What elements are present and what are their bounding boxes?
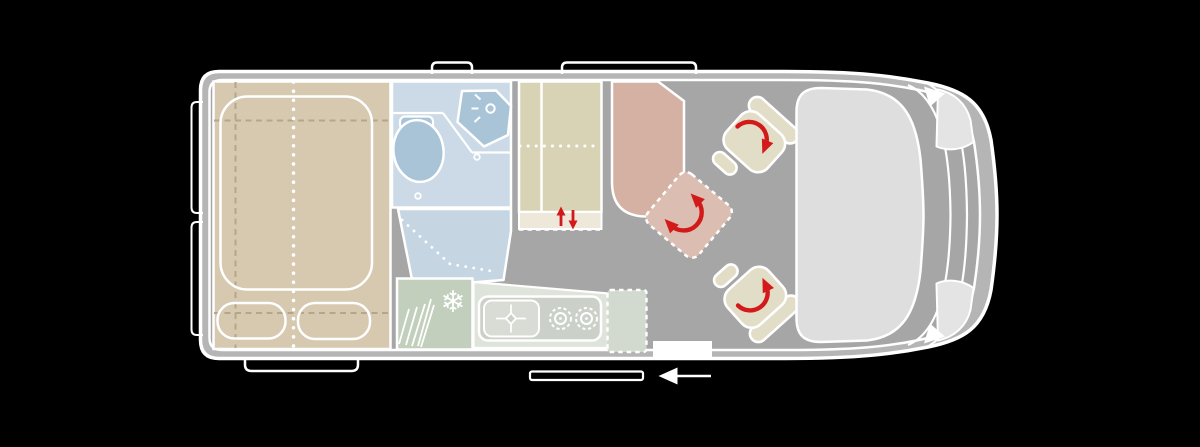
worktop-flap-dashed xyxy=(608,290,647,352)
entry-step xyxy=(653,341,712,358)
wardrobe-area xyxy=(519,82,602,230)
door-slide-arrow-icon xyxy=(659,368,712,385)
fridge-snowflake-icon: ❄ xyxy=(440,285,465,320)
rear-bed-area xyxy=(214,82,391,350)
floorplan-canvas: ❄ xyxy=(0,0,1200,447)
floorplan-page: ❄ xyxy=(0,0,1200,447)
door-rail-marking xyxy=(530,372,643,381)
shower-floor xyxy=(398,209,511,287)
cab-dashboard xyxy=(797,88,924,342)
bathroom-area xyxy=(389,82,511,288)
